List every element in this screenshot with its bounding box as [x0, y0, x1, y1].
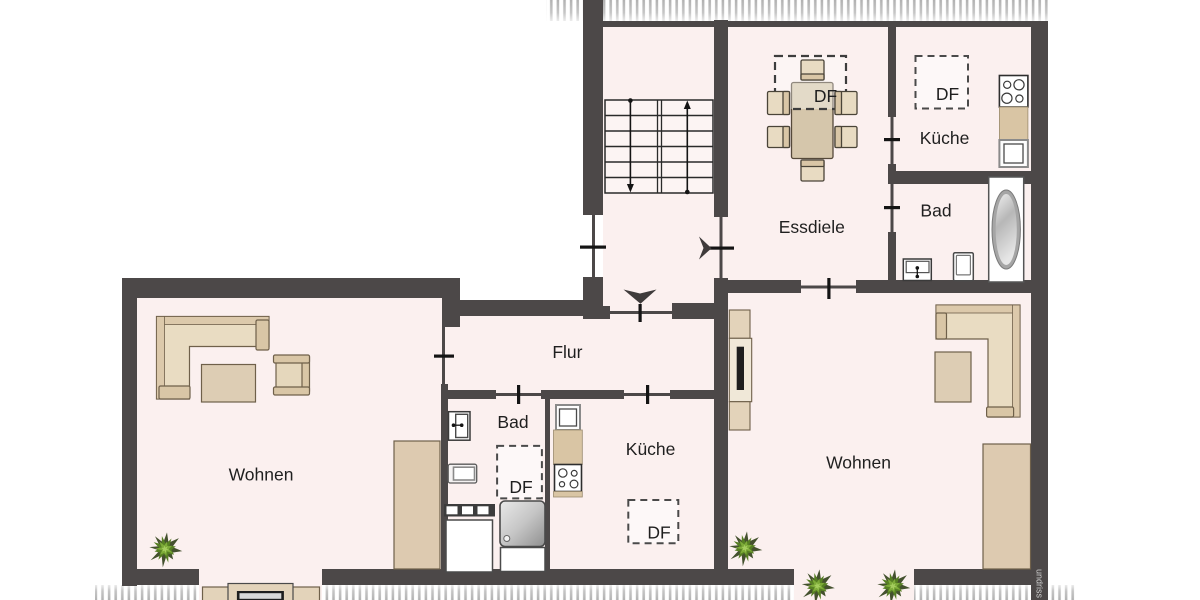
svg-text:DF: DF [509, 477, 532, 497]
svg-text:DF: DF [936, 84, 959, 104]
svg-text:Küche: Küche [626, 439, 676, 459]
svg-text:Flur: Flur [552, 342, 582, 362]
svg-text:Bad: Bad [920, 201, 951, 221]
svg-text:DF: DF [647, 523, 670, 543]
svg-text:Wohnen: Wohnen [229, 465, 294, 485]
svg-text:Essdiele: Essdiele [779, 217, 845, 237]
svg-text:Küche: Küche [920, 128, 970, 148]
svg-text:Wohnen: Wohnen [826, 453, 891, 473]
svg-text:undriss: undriss [1035, 569, 1045, 599]
svg-text:DF: DF [814, 86, 837, 106]
svg-text:Bad: Bad [497, 412, 528, 432]
